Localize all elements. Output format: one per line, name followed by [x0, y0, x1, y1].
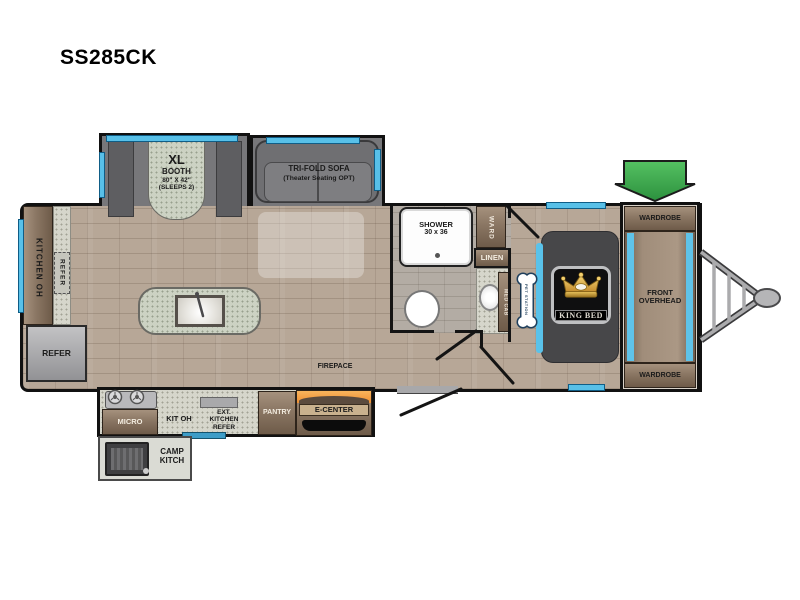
- refer-label: REFER: [42, 349, 71, 359]
- wall-bath-bottom-left: [390, 330, 434, 333]
- ext-kitchen-l3: REFER: [192, 424, 256, 431]
- booth-table: XL BOOTH 80" X 42" (SLEEPS 2): [148, 139, 205, 220]
- window-bedroom-top: [546, 202, 606, 209]
- wardrobe-bottom-label: WARDROBE: [639, 372, 681, 380]
- ext-kitchen-l2: KITCHEN: [192, 416, 256, 423]
- wall-bedroom-left: [508, 248, 511, 342]
- ext-kitchen-l1: EXT.: [192, 409, 256, 416]
- wall-ward-stub: [508, 206, 511, 218]
- floorplan-canvas: SS285CK XL BOOTH 80" X 42" (SLEEPS 2) TR…: [0, 0, 800, 600]
- grill-grate: [111, 448, 143, 470]
- front-cap: WARDROBE FRONT OVERHEAD WARDROBE: [620, 202, 700, 392]
- pet-station-label: PET STATION: [524, 284, 529, 315]
- pantry-label: PANTRY: [263, 409, 291, 417]
- e-center: E-CENTER: [296, 390, 372, 436]
- fireplace-label: FIREPACE: [300, 363, 370, 371]
- rug: [258, 212, 364, 278]
- linen-closet: LINEN: [474, 248, 510, 268]
- med-cab-label: MED CAB: [502, 276, 508, 328]
- window-bedroom-bottom: [568, 384, 605, 391]
- sofa-label: TRI-FOLD SOFA: [257, 165, 381, 174]
- front-window-left: [627, 233, 634, 361]
- microwave: MICRO: [102, 409, 158, 435]
- window-sofa-top: [266, 137, 360, 144]
- linen-label: LINEN: [481, 254, 504, 262]
- micro-label: MICRO: [118, 418, 143, 426]
- wardrobe-top-label: WARDROBE: [639, 215, 681, 223]
- tri-fold-sofa: TRI-FOLD SOFA (Theater Seating OPT): [255, 140, 379, 203]
- front-overhead-label2: OVERHEAD: [639, 297, 682, 305]
- wardrobe-top: WARDROBE: [624, 206, 696, 231]
- ward-label: WARD: [487, 211, 494, 245]
- docking-station-label: DOCKING STATION: [621, 164, 687, 182]
- shower-drain-icon: [435, 253, 440, 258]
- camp-kitch-label: CAMP KITCH: [152, 448, 192, 466]
- crown-icon: [559, 272, 603, 300]
- front-window-right: [686, 233, 693, 361]
- island-sink: [175, 295, 225, 327]
- kitchen-overhead-cabinet: KITCHEN OH: [23, 206, 53, 325]
- window-rear-left: [18, 219, 24, 313]
- page-title: SS285CK: [60, 46, 157, 70]
- window-booth-top: [106, 135, 238, 142]
- grill-knob: [143, 468, 149, 474]
- toilet-icon: [404, 290, 440, 328]
- counter-refer-label: REFER: [58, 255, 65, 291]
- refrigerator: REFER: [26, 325, 87, 382]
- camp-kitch-l2: KITCH: [152, 457, 192, 466]
- wall-bath-left: [390, 206, 393, 333]
- wardrobe-bottom: WARDROBE: [624, 363, 696, 388]
- hitch-icon: [701, 252, 780, 340]
- wall-bath-bottom-right: [455, 330, 483, 333]
- booth-label-size: 80" X 42": [149, 177, 204, 184]
- shower-label: SHOWER: [401, 221, 471, 229]
- kitchen-oh-label: KITCHEN OH: [34, 215, 43, 320]
- king-bed-badge: KING BED: [551, 266, 611, 324]
- king-bed-label: KING BED: [555, 310, 607, 321]
- wall-stub-down: [480, 330, 483, 347]
- docking-label2: STATION: [621, 173, 687, 182]
- booth-label-xl: XL: [149, 153, 204, 168]
- grill-icon: [105, 442, 149, 476]
- e-center-bar: E-CENTER: [299, 404, 369, 416]
- e-center-label: E-CENTER: [315, 406, 353, 414]
- tv-icon: [302, 420, 366, 431]
- pet-station: PET STATION: [516, 272, 538, 329]
- booth-bench-left: [108, 141, 134, 217]
- booth-bench-right: [216, 141, 242, 217]
- cooktop-icon: [105, 391, 157, 409]
- booth-label-sleeps: (SLEEPS 2): [149, 184, 204, 191]
- counter-refer: REFER: [54, 252, 70, 294]
- sofa-label-opt: (Theater Seating OPT): [257, 175, 381, 183]
- wardrobe-cabinet: WARD: [476, 206, 506, 248]
- kitchen-lower-run: MICRO KIT OH EXT. KITCHEN REFER PANTRY E…: [97, 387, 375, 437]
- window-booth-left: [99, 152, 105, 198]
- pantry: PANTRY: [258, 391, 296, 435]
- shower-size-label: 30 x 36: [401, 229, 471, 237]
- window-sofa-right: [374, 149, 381, 191]
- ext-kitchen-label: EXT. KITCHEN REFER: [192, 409, 256, 431]
- booth-label-booth: BOOTH: [149, 168, 204, 177]
- entry-door: [397, 386, 458, 394]
- ext-kitchen-tray: [200, 397, 238, 408]
- camp-kitchen: CAMP KITCH: [98, 436, 192, 481]
- shower: SHOWER 30 x 36: [399, 207, 473, 267]
